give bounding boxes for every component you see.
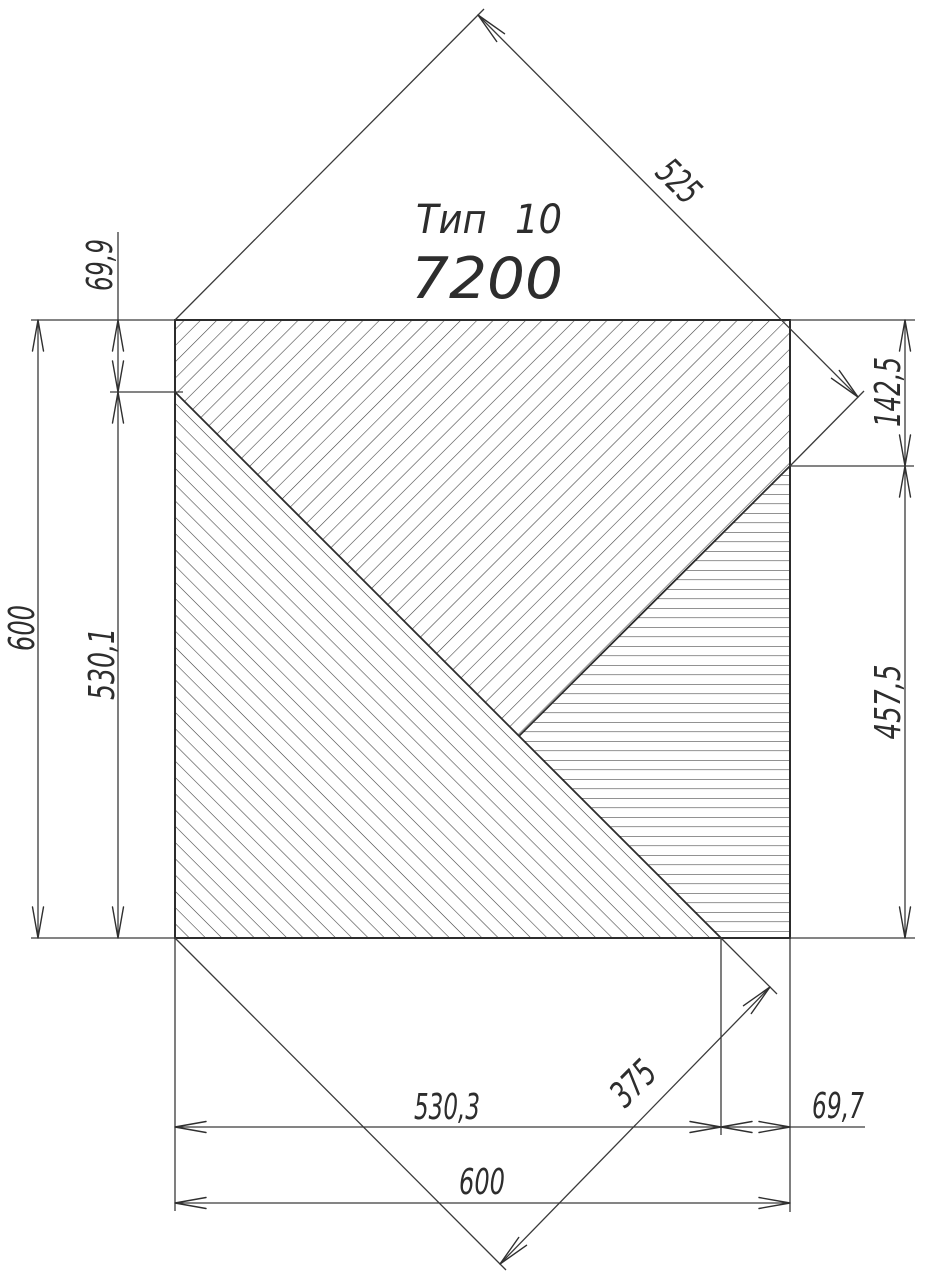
dim-label-bottom-total: 600 bbox=[459, 1162, 505, 1203]
ext-diag-bottom-short bbox=[721, 938, 777, 994]
dim-label-top-diagonal: 525 bbox=[647, 151, 709, 213]
drawing-code: 7200 bbox=[411, 246, 563, 312]
dim-label-left-total: 600 bbox=[2, 605, 43, 651]
dim-label-left-upper: 69,9 bbox=[80, 239, 121, 291]
dim-label-bottom-diagonal: 375 bbox=[602, 1052, 665, 1115]
technical-drawing-canvas: Тип 10 7200 600 530,1 69,9 142,5 457,5 5… bbox=[0, 0, 926, 1284]
dim-label-bottom-right: 69,7 bbox=[812, 1086, 864, 1127]
dim-label-right-lower: 457,5 bbox=[868, 665, 909, 740]
dim-label-right-upper: 142,5 bbox=[868, 357, 909, 427]
hatch-regions bbox=[175, 320, 790, 938]
dim-label-left-lower: 530,1 bbox=[82, 628, 123, 700]
dim-label-bottom-left: 530,3 bbox=[414, 1087, 480, 1128]
drawing-title: Тип 10 bbox=[416, 197, 562, 243]
ext-diag-top-short bbox=[790, 391, 864, 466]
drawing-sheet: Тип 10 7200 600 530,1 69,9 142,5 457,5 5… bbox=[0, 0, 926, 1284]
